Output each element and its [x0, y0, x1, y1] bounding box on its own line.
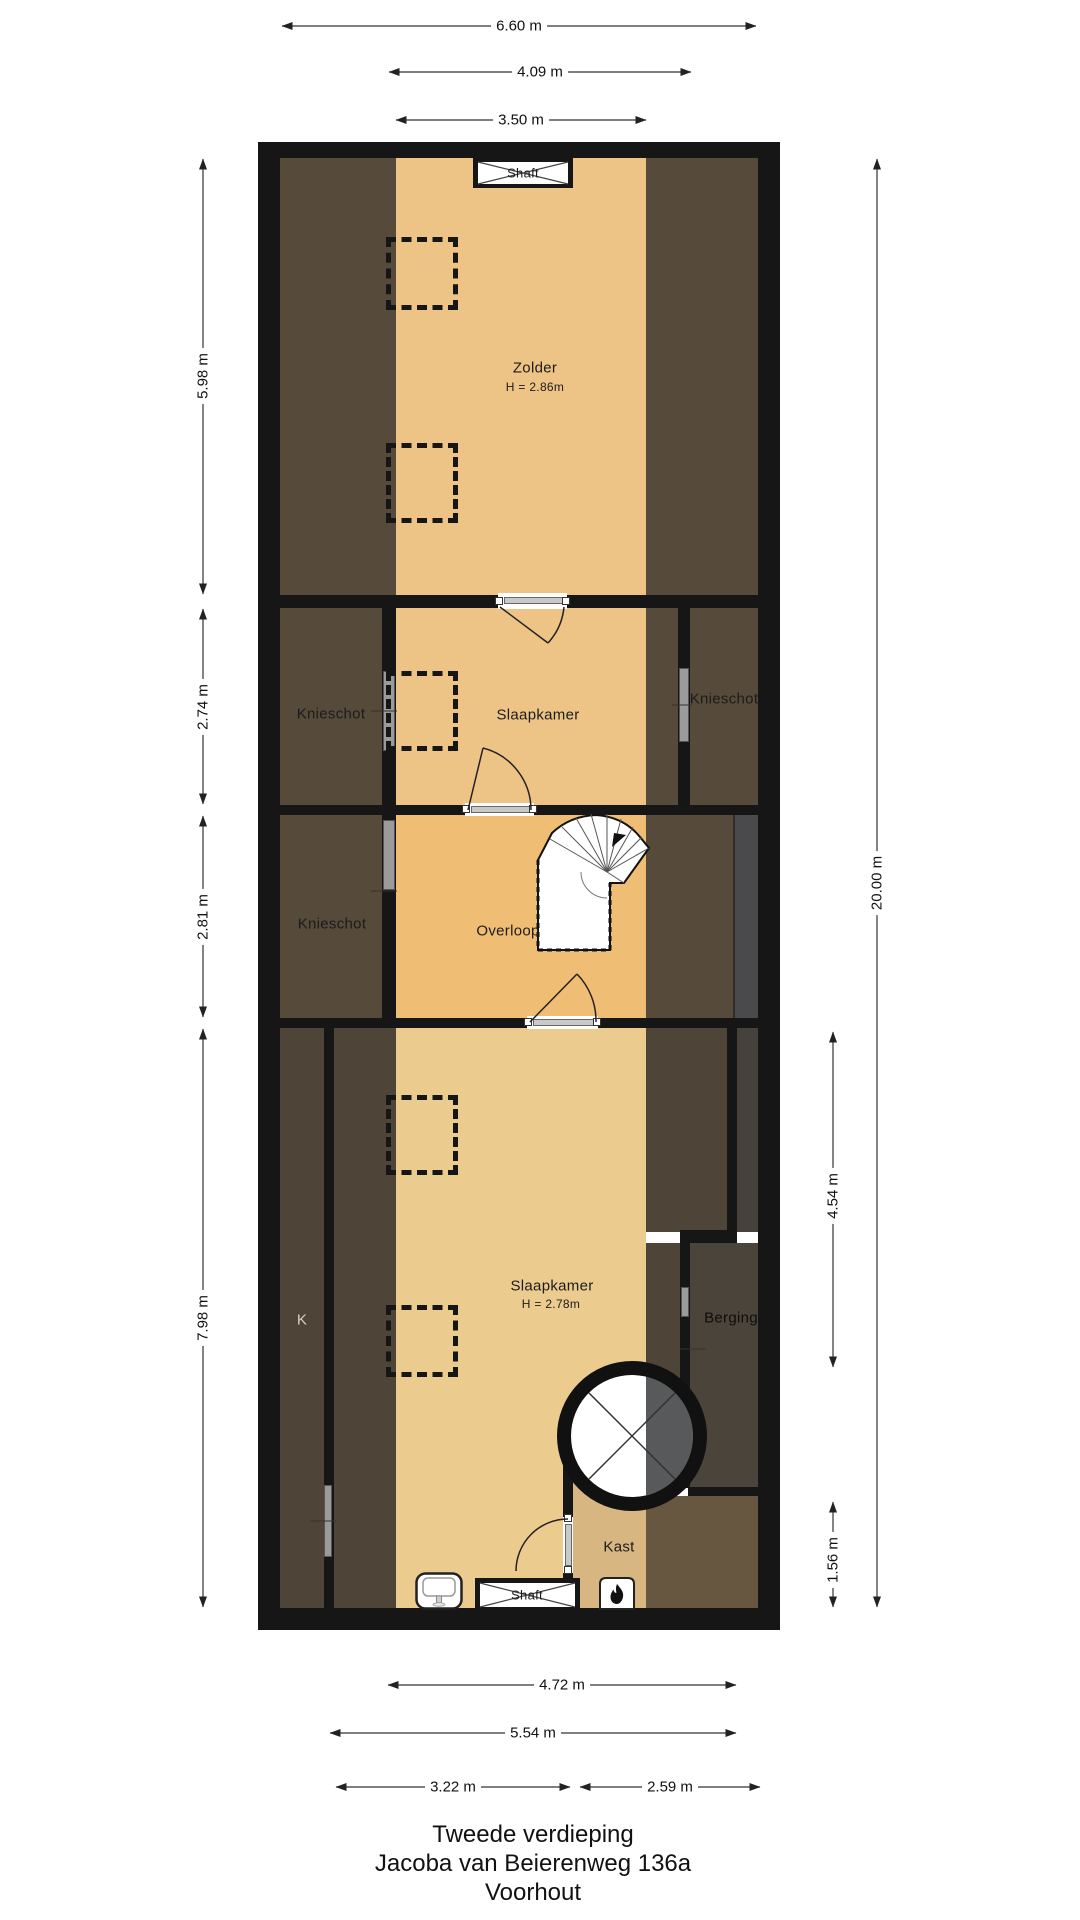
- room-label-zolder: Zolder: [513, 360, 557, 377]
- room-label-slaapkamer-bottom: Slaapkamer: [510, 1278, 593, 1295]
- zone-knieschot-mid-right-inner: [646, 608, 678, 805]
- spiral-stair-circle-icon: [556, 1360, 708, 1512]
- dim-label-472: 4.72 m: [534, 1677, 590, 1694]
- room-label-kast: Kast: [603, 1539, 634, 1556]
- dim-label-350: 3.50 m: [493, 112, 549, 129]
- plan-title-block: Tweede verdieping Jacoba van Beierenweg …: [375, 1820, 691, 1907]
- room-ceiling-zolder: H = 2.86m: [506, 380, 564, 394]
- winder-stairs-icon: [536, 813, 650, 953]
- zone-zolder-roof-left: [280, 158, 396, 595]
- dim-label-454: 4.54 m: [825, 1168, 842, 1224]
- zone-right-gray-strip: [737, 1028, 758, 1232]
- door-2-leaf: [471, 806, 530, 813]
- dim-label-281: 2.81 m: [195, 889, 212, 945]
- outer-wall-right: [758, 142, 780, 1630]
- shaft-label-top: Shaft: [507, 166, 539, 181]
- plan-title-address: Jacoba van Beierenweg 136a: [375, 1849, 691, 1878]
- skylight-icon-4: [386, 1095, 458, 1175]
- door-1-jamb-right: [562, 597, 570, 605]
- room-label-overloop: Overloop: [476, 923, 539, 940]
- room-label-knieschot-mid-left: Knieschot: [297, 706, 366, 723]
- dim-label-259: 2.59 m: [642, 1779, 698, 1796]
- door-4-jamb-top: [564, 1514, 572, 1522]
- outer-wall-left: [258, 142, 280, 1630]
- k-closet-window: [324, 1485, 332, 1557]
- fireplace-flame-icon: [597, 1576, 637, 1610]
- sink-icon: [415, 1572, 465, 1610]
- zone-zolder-floor: [396, 158, 646, 595]
- dim-label-798: 7.98 m: [195, 1290, 212, 1346]
- door-2-jamb-right: [529, 805, 537, 813]
- room-label-knieschot-overloop: Knieschot: [298, 916, 367, 933]
- room-label-k-closet: K: [297, 1312, 307, 1329]
- zone-overloop-gray-strip: [733, 815, 758, 1018]
- dim-label-409: 4.09 m: [512, 64, 568, 81]
- zone-overloop-roof-right: [646, 815, 733, 1018]
- dim-label-274: 2.74 m: [195, 679, 212, 735]
- room-label-berging: Berging: [704, 1310, 758, 1327]
- right-strip-wall-upper: [727, 1028, 737, 1232]
- dim-label-554: 5.54 m: [505, 1725, 561, 1742]
- berging-jog-wall: [680, 1230, 737, 1243]
- zone-zolder-roof-right: [646, 158, 758, 595]
- floorplan-canvas: Zolder H = 2.86m Slaapkamer Knieschot Kn…: [0, 0, 1080, 1920]
- door-3-jamb-left: [524, 1018, 532, 1026]
- plan-title-floor: Tweede verdieping: [375, 1820, 691, 1849]
- zone-kast-dark: [646, 1496, 758, 1608]
- skylight-icon-2: [386, 443, 458, 523]
- dim-label-322: 3.22 m: [425, 1779, 481, 1796]
- interior-wall-3: [280, 1018, 758, 1028]
- zone-bottom-roof-right-upper: [646, 1028, 727, 1232]
- skylight-icon-3: [386, 671, 458, 751]
- berging-window: [681, 1287, 689, 1317]
- door-1-leaf: [504, 597, 563, 604]
- door-3-jamb-right: [593, 1018, 601, 1026]
- door-3-leaf: [533, 1019, 594, 1026]
- dim-label-2000: 20.00 m: [869, 851, 886, 915]
- knieschot-window-mid-right: [679, 668, 689, 742]
- outer-wall-top: [258, 142, 780, 158]
- door-4-leaf: [565, 1524, 572, 1566]
- skylight-icon-5: [386, 1305, 458, 1377]
- shaft-label-bottom: Shaft: [511, 1588, 543, 1603]
- door-4-jamb-bottom: [564, 1566, 572, 1574]
- skylight-icon-1: [386, 237, 458, 310]
- room-label-knieschot-mid-right: Knieschot: [690, 691, 759, 708]
- dim-label-156: 1.56 m: [825, 1532, 842, 1588]
- door-2-jamb-left: [462, 805, 470, 813]
- room-label-slaapkamer-mid: Slaapkamer: [496, 707, 579, 724]
- dim-label-660: 6.60 m: [491, 18, 547, 35]
- knieschot-window-overloop: [383, 820, 395, 890]
- room-ceiling-slaapkamer-bottom: H = 2.78m: [522, 1297, 580, 1311]
- door-1-jamb-left: [495, 597, 503, 605]
- plan-title-city: Voorhout: [375, 1878, 691, 1907]
- dim-label-598: 5.98 m: [195, 348, 212, 404]
